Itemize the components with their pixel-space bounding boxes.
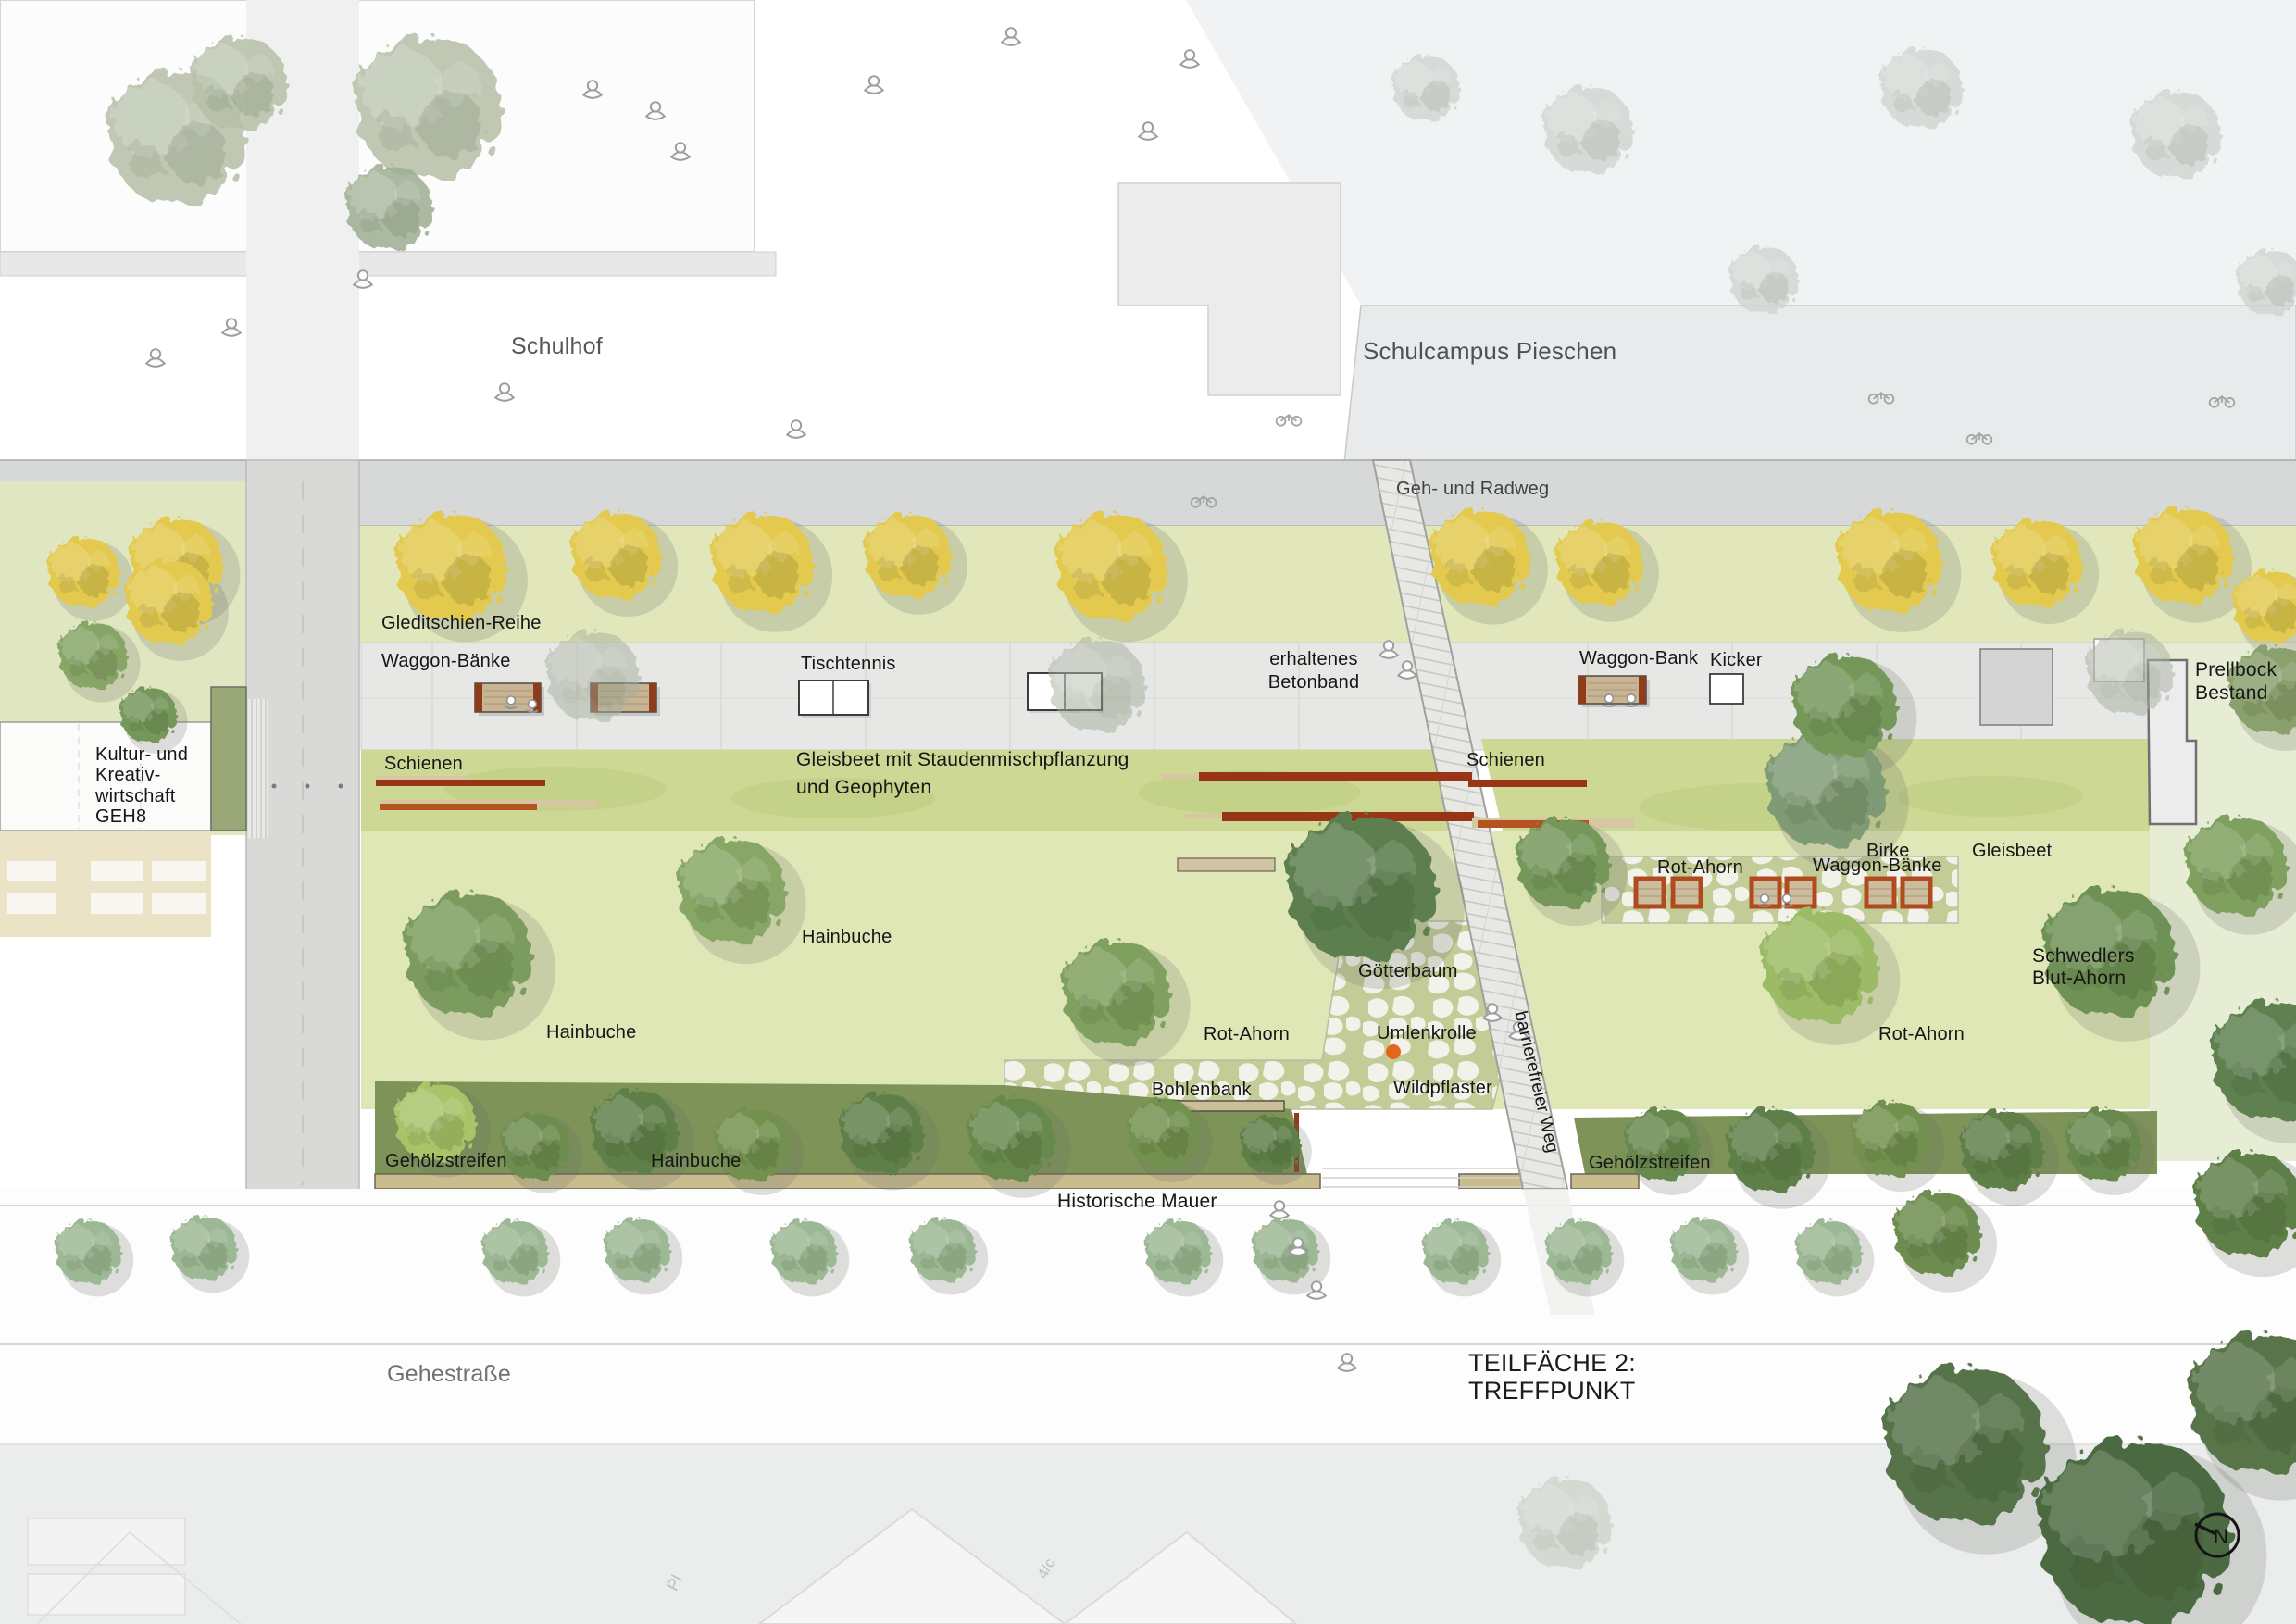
tree — [1241, 1115, 1300, 1174]
tree — [715, 1107, 789, 1181]
north-letter: N — [2214, 1525, 2228, 1548]
gleditsia-tree — [2134, 506, 2232, 605]
street-tree — [1253, 1218, 1317, 1282]
tree — [1894, 1191, 1980, 1277]
timber-edge — [1178, 858, 1275, 871]
street-tree — [910, 1218, 975, 1282]
gleditsia-tree — [865, 513, 951, 599]
gleditsia-tree — [126, 559, 212, 645]
tree — [1792, 654, 1896, 757]
tree-silhouette — [1543, 85, 1632, 174]
rot-ahorn-tree — [1062, 939, 1168, 1045]
tree — [2066, 1107, 2140, 1181]
tree-silhouette — [1518, 1477, 1610, 1568]
courtyard-tree — [346, 165, 432, 251]
shelter-building — [1980, 649, 2053, 725]
waggon-bench — [1578, 676, 1650, 707]
gleditsia-tree — [712, 513, 813, 614]
street-tree — [1423, 1219, 1488, 1284]
tree-silhouette — [1392, 55, 1459, 121]
street-tree — [1671, 1218, 1736, 1282]
courtyard-tree — [192, 36, 286, 131]
geh8-tree-strip — [211, 687, 246, 831]
gleditsia-tree — [1556, 520, 1642, 606]
tree — [395, 1082, 475, 1162]
tree — [2186, 816, 2287, 917]
kicker-table — [1710, 674, 1743, 704]
tree — [1885, 1365, 2045, 1525]
historische-mauer-wall — [1571, 1174, 1639, 1189]
courtyard-tree — [356, 35, 501, 181]
tree — [840, 1092, 923, 1175]
tree-silhouette — [2131, 90, 2220, 179]
ramp-hatching — [248, 699, 268, 838]
rot-ahorn-tree — [1762, 908, 1878, 1024]
tree-silhouette — [1050, 638, 1144, 732]
tree — [1128, 1098, 1199, 1169]
campus-building — [1344, 306, 2296, 463]
tree — [1961, 1109, 2042, 1191]
hainbuche-tree — [678, 837, 784, 943]
gleditsia-tree — [1430, 508, 1529, 606]
tree-silhouette — [1729, 245, 1798, 314]
street-tree — [1546, 1219, 1611, 1284]
tree — [1852, 1100, 1928, 1177]
tree — [1516, 817, 1608, 908]
tree — [1625, 1107, 1699, 1181]
umlenkrolle-marker — [1386, 1044, 1401, 1059]
street-tree — [1796, 1219, 1861, 1284]
gleditsia-tree — [1056, 512, 1166, 621]
parking-area — [0, 831, 211, 937]
site-plan: N SchulhofSchulcampus PieschenGeh- und R… — [0, 0, 2296, 1624]
gleditsia-tree — [48, 537, 119, 608]
gleditsia-tree — [571, 511, 660, 600]
gleditsia-tree — [1837, 509, 1940, 613]
goetterbaum-tree — [1287, 813, 1435, 961]
tree — [592, 1089, 678, 1175]
street-tree — [1145, 1219, 1210, 1284]
tree — [120, 687, 177, 743]
street-tree — [605, 1218, 669, 1282]
tree — [2040, 1438, 2229, 1624]
tree — [968, 1096, 1054, 1182]
tree-silhouette — [2087, 630, 2173, 716]
hainbuche-tree — [405, 891, 530, 1017]
plan-graphics: N — [0, 0, 2296, 1624]
gleditsia-tree — [396, 512, 505, 621]
tree — [501, 1112, 569, 1181]
street-tree — [56, 1219, 120, 1284]
street-tree — [482, 1219, 547, 1284]
street-tree — [771, 1219, 836, 1284]
blut-ahorn-tree — [2044, 887, 2175, 1018]
tree-silhouette — [1880, 47, 1962, 129]
tree — [1728, 1107, 1814, 1193]
tree-silhouette — [546, 630, 638, 721]
gleditsia-tree — [1992, 518, 2081, 607]
street-tree — [171, 1216, 236, 1280]
school-building-edge — [0, 252, 776, 276]
tree — [58, 621, 127, 690]
table-tennis — [799, 681, 871, 718]
